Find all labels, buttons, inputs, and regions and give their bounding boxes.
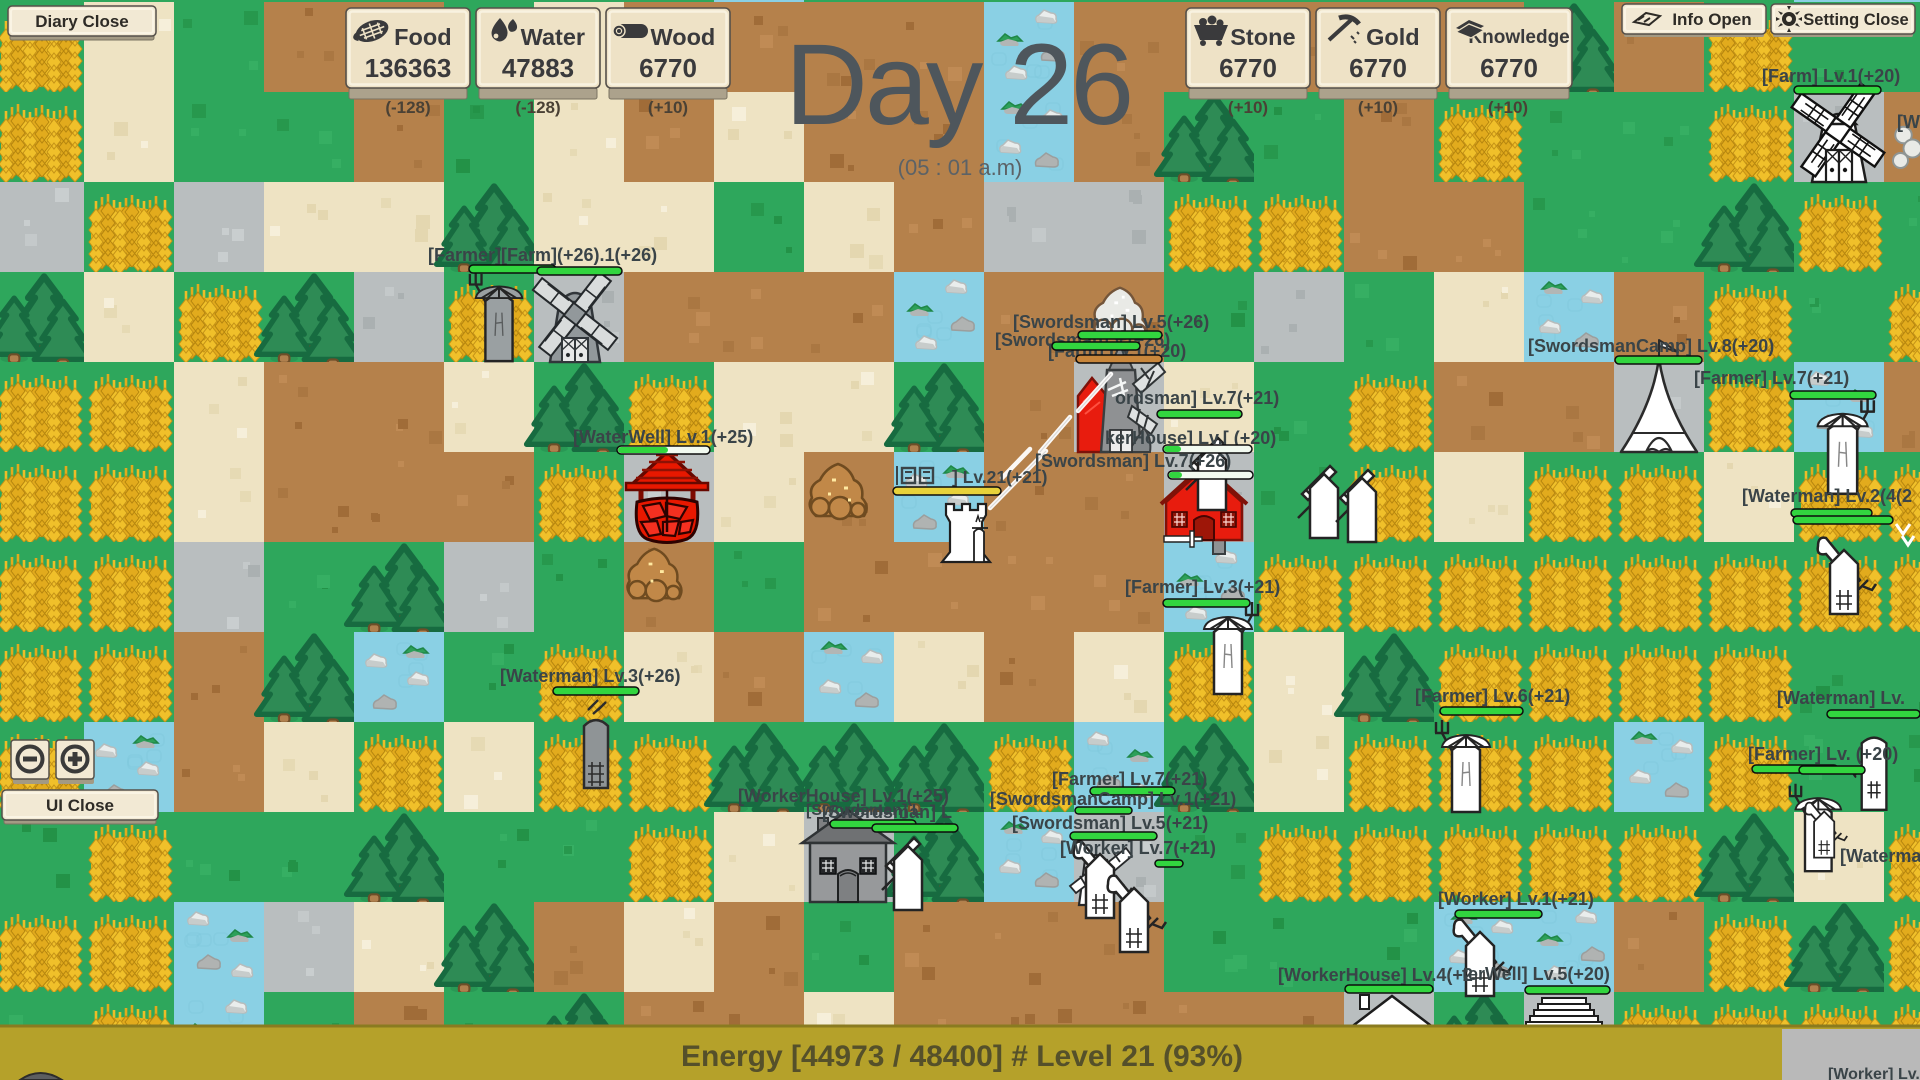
svg-text:6770: 6770	[1349, 53, 1407, 83]
svg-text:6770: 6770	[1219, 53, 1277, 83]
svg-text:6770: 6770	[1480, 53, 1538, 83]
svg-text:[Waterman] Lv.2(4(2: [Waterman] Lv.2(4(2	[1742, 486, 1912, 506]
svg-text:[Farmer] Lv. (+20): [Farmer] Lv. (+20)	[1748, 744, 1898, 764]
svg-text:[Farmer] Lv.7(+21): [Farmer] Lv.7(+21)	[1694, 368, 1849, 388]
svg-text:(+10): (+10)	[648, 98, 688, 117]
svg-text:Water: Water	[521, 24, 585, 50]
svg-text:[Farmer][Farm](+26).1(+26): [Farmer][Farm](+26).1(+26)	[428, 245, 657, 265]
svg-text:UI Close: UI Close	[46, 796, 114, 815]
svg-text:[W: [W	[1897, 112, 1920, 132]
svg-text:6770: 6770	[639, 53, 697, 83]
svg-text:[Farmer] Lv.3(+21): [Farmer] Lv.3(+21)	[1125, 577, 1280, 597]
svg-text:ordsman] Lv.7(+21): ordsman] Lv.7(+21)	[1115, 388, 1279, 408]
svg-text:[Swordsman] Lv.5(+26): [Swordsman] Lv.5(+26)	[1013, 312, 1209, 332]
svg-text:[Waterman] Lv.3(+26): [Waterman] Lv.3(+26)	[500, 666, 681, 686]
svg-text:[Waterman] Lv.: [Waterman] Lv.	[1777, 688, 1905, 708]
svg-text:[Waterma: [Waterma	[1840, 846, 1920, 866]
svg-text:[Worker] Lv.1(+21): [Worker] Lv.1(+21)	[1828, 1066, 1920, 1080]
svg-text:Energy [44973 / 48400] # Leve: Energy [44973 / 48400] # Level 21 (93%)	[681, 1040, 1243, 1073]
svg-text:[Farm] Lv.1(+20): [Farm] Lv.1(+20)	[1762, 66, 1900, 86]
svg-text:Day 26: Day 26	[785, 21, 1131, 149]
svg-text:Diary Close: Diary Close	[35, 12, 129, 31]
svg-text:[Swordsman] L: [Swordsman] L	[806, 802, 922, 819]
svg-text:[Worker] Lv.1(+21): [Worker] Lv.1(+21)	[1438, 889, 1594, 909]
svg-text:Gold: Gold	[1366, 24, 1420, 50]
svg-text:[Swordsman] Lv.7(+26): [Swordsman] Lv.7(+26)	[1035, 451, 1231, 471]
svg-text:(05 : 01 a.m): (05 : 01 a.m)	[898, 155, 1023, 180]
svg-text:136363: 136363	[365, 53, 452, 83]
svg-text:(-128): (-128)	[385, 98, 430, 117]
svg-text:Info Open: Info Open	[1672, 10, 1751, 29]
svg-text:Stone: Stone	[1230, 24, 1295, 50]
svg-text:(+10): (+10)	[1488, 98, 1528, 117]
svg-text:[Farmer] Lv.6(+21): [Farmer] Lv.6(+21)	[1415, 686, 1570, 706]
svg-text:47883: 47883	[502, 53, 574, 83]
svg-text:] Lv.21(+21): ] Lv.21(+21)	[952, 467, 1047, 487]
svg-text:[WaterWell] Lv.1(+25): [WaterWell] Lv.1(+25)	[573, 427, 753, 447]
svg-text:Setting Close: Setting Close	[1803, 11, 1908, 29]
svg-text:terWell] Lv.5(+20): terWell] Lv.5(+20)	[1462, 964, 1610, 984]
svg-text:[Swordsman] Lv.5(+21): [Swordsman] Lv.5(+21)	[1012, 813, 1208, 833]
svg-text:Wood: Wood	[650, 24, 715, 50]
svg-text:Food: Food	[394, 24, 451, 50]
svg-text:[WorkerHouse] Lv.4(+2: [WorkerHouse] Lv.4(+2	[1278, 965, 1473, 985]
svg-text:[SwordsmanCamp] Lv.1(+21): [SwordsmanCamp] Lv.1(+21)	[990, 789, 1236, 809]
svg-text:[Farmer] Lv.7(+21): [Farmer] Lv.7(+21)	[1052, 769, 1207, 789]
svg-text:(+10): (+10)	[1358, 98, 1398, 117]
svg-text:(-128): (-128)	[515, 98, 560, 117]
svg-text:[Worker] Lv.7(+21): [Worker] Lv.7(+21)	[1060, 838, 1216, 858]
svg-text:(+10): (+10)	[1228, 98, 1268, 117]
svg-text:[SwordsmanCamp] Lv.8(+20): [SwordsmanCamp] Lv.8(+20)	[1528, 336, 1774, 356]
